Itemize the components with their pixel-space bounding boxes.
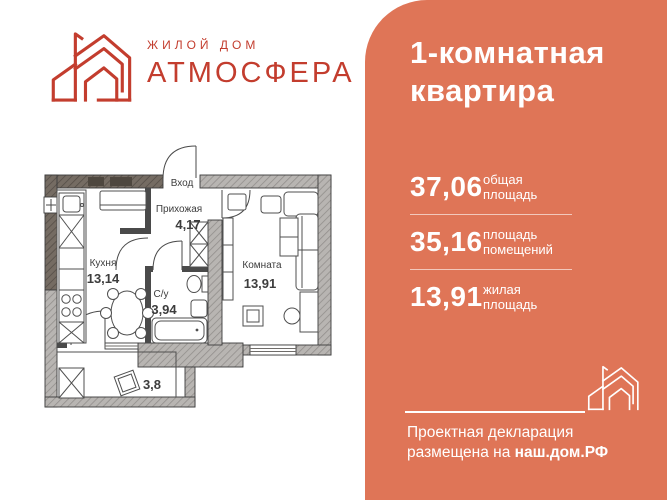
info-panel: 1-комнатная квартира 37,06 общая площадь… bbox=[365, 0, 667, 500]
stat-label: общая площадь bbox=[483, 172, 537, 202]
declaration-line2: размещена на наш.дом.РФ bbox=[407, 443, 608, 463]
declaration-note: Проектная декларация размещена на наш.до… bbox=[407, 423, 608, 462]
room-area: 13,91 bbox=[244, 276, 277, 291]
stat-total-area: 37,06 общая площадь bbox=[410, 168, 630, 206]
brand-house-icon bbox=[45, 26, 137, 108]
stat-rooms-area: 35,16 площадь помещений bbox=[410, 223, 630, 261]
kitchen-label: Кухня bbox=[90, 258, 117, 269]
hallway-label: Прихожая bbox=[156, 204, 202, 215]
floor-plan: Вход Прихожая 4,17 Кухня 13,14 С/у 3,94 … bbox=[30, 138, 350, 430]
divider bbox=[410, 214, 572, 215]
footer-divider bbox=[405, 411, 585, 413]
entrance-label: Вход bbox=[171, 178, 194, 189]
room-label: Комната bbox=[242, 260, 282, 271]
apartment-title: 1-комнатная квартира bbox=[410, 34, 605, 110]
brand-text: ЖИЛОЙ ДОМ АТМОСФЕРА bbox=[147, 26, 355, 90]
declaration-line1: Проектная декларация bbox=[407, 423, 608, 443]
panel-house-icon bbox=[579, 362, 647, 414]
brand-header: ЖИЛОЙ ДОМ АТМОСФЕРА bbox=[45, 26, 355, 108]
brand-name: АТМОСФЕРА bbox=[147, 57, 355, 90]
stat-label: жилая площадь bbox=[483, 282, 537, 312]
kitchen-area: 13,14 bbox=[87, 271, 120, 286]
area-stats: 37,06 общая площадь 35,16 площадь помеще… bbox=[410, 168, 630, 316]
flyer: ЖИЛОЙ ДОМ АТМОСФЕРА bbox=[0, 0, 667, 500]
stat-living-area: 13,91 жилая площадь bbox=[410, 278, 630, 316]
balcony-area: 3,8 bbox=[143, 377, 161, 392]
hallway-area: 4,17 bbox=[175, 217, 200, 232]
stat-label: площадь помещений bbox=[483, 227, 553, 257]
title-line1: 1-комнатная bbox=[410, 35, 605, 70]
stat-value: 13,91 bbox=[410, 281, 483, 313]
bathroom-area: 3,94 bbox=[151, 302, 177, 317]
bathroom-label: С/у bbox=[154, 289, 169, 300]
title-line2: квартира bbox=[410, 73, 554, 108]
stat-value: 35,16 bbox=[410, 226, 483, 258]
stat-value: 37,06 bbox=[410, 171, 483, 203]
divider bbox=[410, 269, 572, 270]
brand-tagline: ЖИЛОЙ ДОМ bbox=[147, 38, 355, 52]
